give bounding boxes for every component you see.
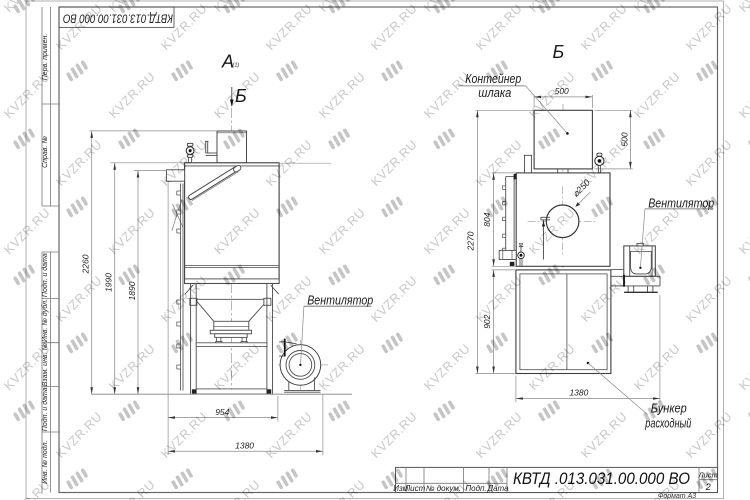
svg-text:1380: 1380 — [569, 388, 588, 398]
svg-text:2270: 2270 — [465, 231, 475, 251]
svg-text:Инв. № дубл.: Инв. № дубл. — [41, 299, 49, 342]
svg-text:1890: 1890 — [127, 281, 137, 300]
svg-text:2260: 2260 — [81, 254, 91, 274]
svg-text:Справ. №: Справ. № — [42, 136, 49, 168]
svg-text:Б: Б — [553, 42, 565, 62]
svg-text:1990: 1990 — [104, 273, 114, 292]
svg-text:1380: 1380 — [235, 440, 254, 450]
svg-text:(1): (1) — [233, 63, 240, 69]
svg-text:Вентилятор: Вентилятор — [307, 293, 373, 308]
svg-text:Подп. и дата: Подп. и дата — [41, 253, 49, 297]
svg-text:расходный: расходный — [645, 416, 692, 431]
svg-text:Подп. и дата: Подп. и дата — [41, 387, 49, 431]
svg-text:А: А — [221, 52, 234, 72]
svg-text:Лист: Лист — [404, 484, 426, 493]
svg-text:шлака: шлака — [478, 85, 511, 100]
